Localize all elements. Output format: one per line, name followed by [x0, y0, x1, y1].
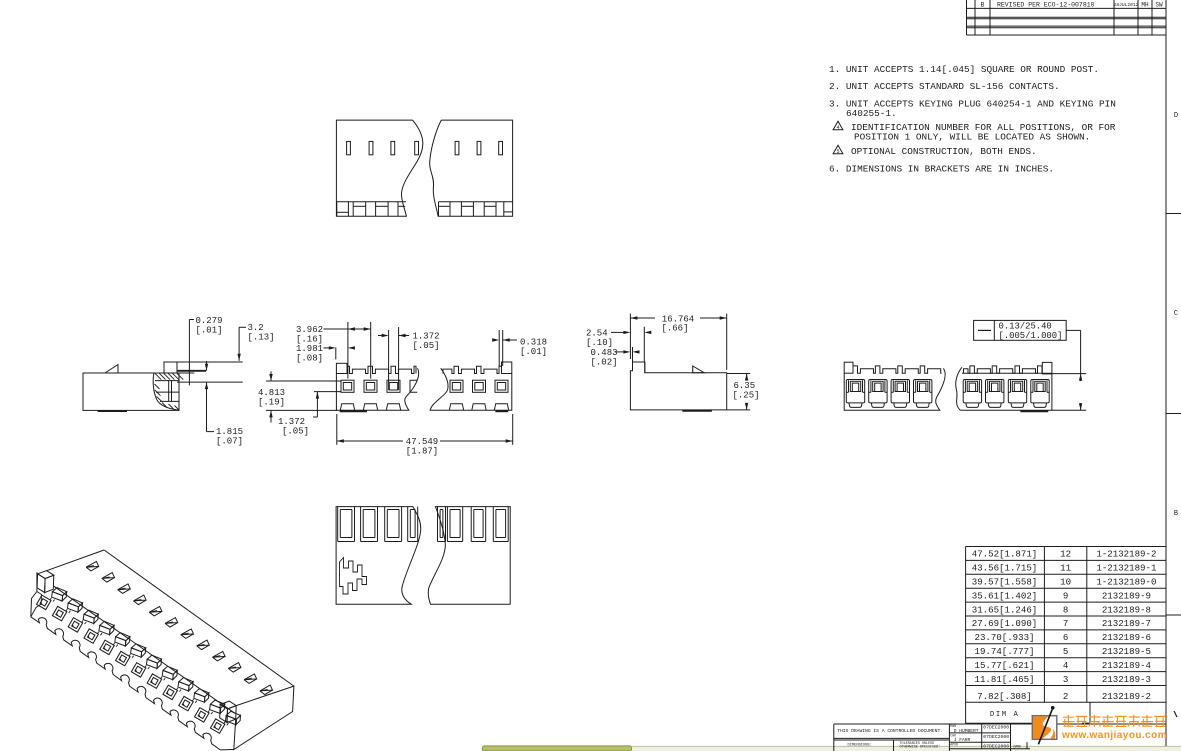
svg-text:B: B	[981, 1, 985, 8]
svg-text:6. DIMENSIONS IN BRACKETS ARE: 6. DIMENSIONS IN BRACKETS ARE IN INCHES.	[829, 163, 1054, 174]
svg-text:C: C	[1174, 310, 1178, 318]
svg-text:3.962: 3.962	[296, 325, 323, 335]
svg-text:2132189-5: 2132189-5	[1102, 646, 1151, 657]
svg-text:[.08]: [.08]	[296, 354, 323, 364]
svg-text:NAME: NAME	[1014, 745, 1022, 749]
svg-text:THIS DRAWING IS A CONTROLLED D: THIS DRAWING IS A CONTROLLED DOCUMENT.	[837, 728, 943, 734]
svg-text:39.57[1.558]: 39.57[1.558]	[972, 577, 1038, 588]
svg-text:23.70[.933]: 23.70[.933]	[974, 632, 1034, 643]
svg-text:9: 9	[1063, 590, 1068, 601]
svg-text:11.81[.465]: 11.81[.465]	[974, 674, 1034, 685]
svg-text:[.25]: [.25]	[733, 391, 760, 401]
svg-text:0.483: 0.483	[591, 348, 618, 358]
svg-text:5: 5	[1063, 646, 1068, 657]
svg-text:[.01]: [.01]	[520, 347, 547, 357]
svg-text:1.981: 1.981	[296, 344, 323, 354]
svg-text:[.07]: [.07]	[216, 437, 243, 447]
svg-text:5: 5	[836, 149, 839, 155]
svg-text:1.372: 1.372	[278, 417, 305, 427]
svg-text:1. UNIT ACCEPTS 1.14[.045] SQU: 1. UNIT ACCEPTS 1.14[.045] SQUARE OR ROU…	[829, 64, 1099, 75]
svg-text:1.372: 1.372	[413, 332, 440, 342]
svg-text:[.05]: [.05]	[413, 341, 440, 351]
svg-text:6.35: 6.35	[734, 381, 756, 391]
svg-text:7.82[.308]: 7.82[.308]	[977, 691, 1032, 702]
svg-text:2132189-4: 2132189-4	[1102, 660, 1151, 671]
svg-text:[.66]: [.66]	[661, 324, 688, 334]
svg-text:2.54: 2.54	[586, 329, 608, 339]
svg-text:[.01]: [.01]	[196, 325, 223, 335]
svg-text:[.10]: [.10]	[586, 338, 613, 348]
svg-text:2132189-9: 2132189-9	[1102, 590, 1151, 601]
svg-text:[.13]: [.13]	[248, 333, 275, 343]
svg-text:[1.87]: [1.87]	[406, 447, 438, 457]
svg-text:CHK: CHK	[950, 733, 956, 737]
svg-text:0.318: 0.318	[520, 338, 547, 348]
svg-text:6: 6	[1063, 632, 1068, 643]
svg-text:3: 3	[1063, 674, 1068, 685]
svg-text:[.05]: [.05]	[282, 427, 309, 437]
svg-text:D: D	[1174, 112, 1178, 120]
svg-text:2132189-3: 2132189-3	[1102, 674, 1151, 685]
svg-text:07DEC2000: 07DEC2000	[983, 724, 1009, 730]
svg-text:8: 8	[1063, 604, 1068, 615]
svg-text:28JUL2012: 28JUL2012	[1114, 2, 1139, 8]
svg-text:DIMENSIONS:: DIMENSIONS:	[848, 743, 872, 747]
svg-text:DIM A: DIM A	[990, 711, 1020, 719]
svg-text:2132189-6: 2132189-6	[1102, 632, 1151, 643]
svg-text:47.52[1.871]: 47.52[1.871]	[972, 549, 1038, 560]
svg-text:2132189-7: 2132189-7	[1102, 618, 1151, 629]
svg-text:0.279: 0.279	[196, 316, 223, 326]
svg-text:[.16]: [.16]	[296, 335, 323, 345]
svg-text:REVISED PER ECO-12-007810: REVISED PER ECO-12-007810	[997, 1, 1095, 8]
svg-text:OPTIONAL CONSTRUCTION, BOTH EN: OPTIONAL CONSTRUCTION, BOTH ENDS.	[851, 146, 1037, 157]
svg-text:[.005/1.000]: [.005/1.000]	[999, 331, 1063, 341]
svg-text:1.815: 1.815	[216, 427, 243, 437]
svg-text:2. UNIT ACCEPTS STANDARD SL-15: 2. UNIT ACCEPTS STANDARD SL-156 CONTACTS…	[829, 81, 1060, 92]
svg-text:[.19]: [.19]	[258, 398, 285, 408]
svg-text:27.69[1.090]: 27.69[1.090]	[972, 618, 1038, 629]
svg-text:07DEC2000: 07DEC2000	[983, 743, 1009, 749]
svg-text:12: 12	[1060, 549, 1071, 560]
svg-text:2132189-8: 2132189-8	[1102, 604, 1151, 615]
svg-text:POSITION 1 ONLY, WILL BE LOCAT: POSITION 1 ONLY, WILL BE LOCATED AS SHOW…	[854, 131, 1090, 142]
svg-text:1-2132189-2: 1-2132189-2	[1096, 549, 1156, 560]
svg-text:D HUMBERT: D HUMBERT	[954, 728, 979, 734]
svg-text:2: 2	[1063, 691, 1068, 702]
svg-text:19.74[.777]: 19.74[.777]	[974, 646, 1034, 657]
svg-text:4: 4	[1063, 660, 1068, 671]
svg-text:1-2132189-0: 1-2132189-0	[1096, 577, 1156, 588]
svg-text:11: 11	[1060, 563, 1071, 574]
svg-text:[.02]: [.02]	[591, 358, 618, 368]
svg-text:OTHERWISE SPECIFIED:: OTHERWISE SPECIFIED:	[900, 746, 941, 750]
svg-text:43.56[1.715]: 43.56[1.715]	[972, 563, 1038, 574]
svg-text:3.2: 3.2	[248, 323, 264, 333]
svg-text:10: 10	[1060, 577, 1071, 588]
svg-text:MH: MH	[1141, 1, 1149, 8]
svg-text:B: B	[1174, 510, 1178, 518]
svg-text:07DEC2000: 07DEC2000	[983, 734, 1009, 740]
svg-text:2132189-2: 2132189-2	[1102, 691, 1151, 702]
svg-text:1-2132189-1: 1-2132189-1	[1096, 563, 1157, 574]
svg-text:4: 4	[836, 125, 839, 131]
svg-text:7: 7	[1063, 618, 1068, 629]
svg-text:SW: SW	[1155, 1, 1163, 8]
svg-text:47.549: 47.549	[406, 437, 438, 447]
svg-text:www.wanjiayou.com: www.wanjiayou.com	[1061, 730, 1167, 741]
svg-text:640255-1.: 640255-1.	[846, 108, 897, 119]
svg-text:DWN: DWN	[950, 724, 956, 728]
svg-text:15.77[.621]: 15.77[.621]	[974, 660, 1034, 671]
svg-text:31.65[1.246]: 31.65[1.246]	[972, 604, 1038, 615]
svg-text:35.61[1.402]: 35.61[1.402]	[972, 590, 1038, 601]
svg-text:APVD: APVD	[950, 743, 958, 747]
svg-text:4.813: 4.813	[258, 388, 285, 398]
